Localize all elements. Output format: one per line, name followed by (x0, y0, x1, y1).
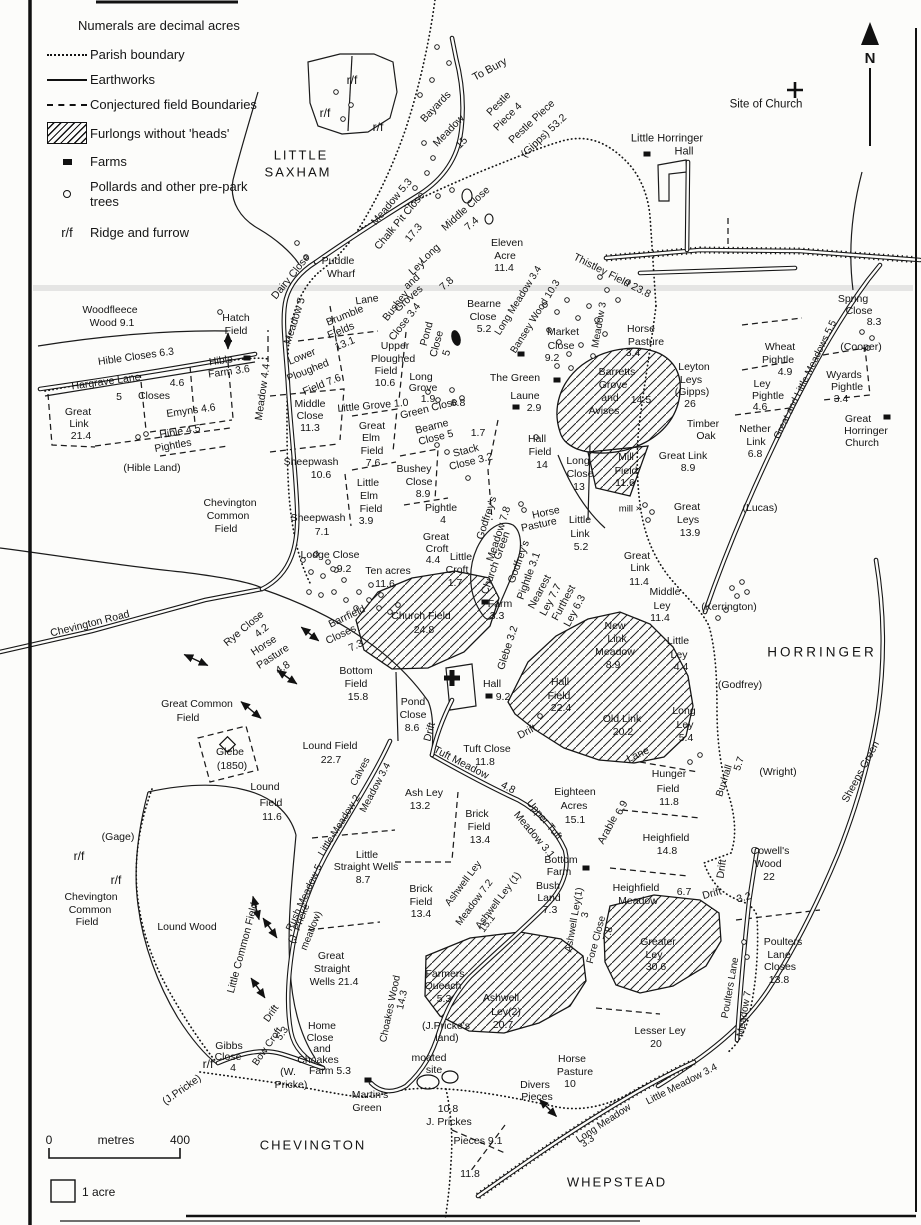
tree-icon (321, 574, 326, 579)
tree-icon (418, 93, 423, 98)
tree-icon (576, 316, 581, 321)
compass-label: N (865, 50, 876, 67)
scale-unit: metres (98, 1133, 135, 1147)
tree-icon (643, 503, 648, 508)
scale-end: 400 (170, 1133, 190, 1147)
farm-icon (244, 356, 251, 361)
ridge-furrow-arrow-icon (277, 670, 297, 684)
tree-icon (646, 518, 651, 523)
tree-icon (598, 275, 603, 280)
legend-label: Conjectured field Boundaries (90, 97, 257, 112)
tree-icon (543, 303, 548, 308)
tree-icon (557, 340, 562, 345)
tree-icon (745, 590, 750, 595)
tree-icon (866, 346, 871, 351)
tree-icon (688, 760, 693, 765)
tree-icon (369, 583, 374, 588)
tree-icon (698, 753, 703, 758)
tree-icon (870, 336, 875, 341)
farm-icon (365, 1078, 372, 1083)
legend-title: Numerals are decimal acres (78, 18, 312, 33)
tree-icon (314, 552, 319, 557)
tree-icon (388, 610, 393, 615)
scale-start: 0 (46, 1133, 53, 1147)
tree-icon (730, 586, 735, 591)
legend-label: Parish boundary (90, 47, 185, 62)
farm-icon (554, 378, 561, 383)
tree-icon (591, 354, 596, 359)
tree-icon (735, 594, 740, 599)
earthworks-icon (44, 79, 90, 81)
tree-icon (569, 366, 574, 371)
tree-icon (565, 298, 570, 303)
legend-item-parish-boundary: Parish boundary (44, 47, 312, 62)
tree-icon (595, 318, 600, 323)
conjectured-boundary-icon (44, 104, 90, 106)
tree-icon (555, 364, 560, 369)
tree-icon (450, 388, 455, 393)
tree-icon (344, 598, 349, 603)
moat (442, 1071, 458, 1083)
tree-icon (447, 61, 452, 66)
ridge-furrow-arrow-icon (263, 918, 277, 938)
legend-label: Furlongs without 'heads' (90, 126, 229, 141)
tree-icon (342, 578, 347, 583)
tree-icon (309, 570, 314, 575)
tree-icon (555, 310, 560, 315)
tree-icon (396, 603, 401, 608)
tree-icon (307, 590, 312, 595)
tree-icon (742, 940, 747, 945)
ridge-furrow-arrow-icon (251, 978, 265, 998)
tree-icon (431, 156, 436, 161)
tree-icon (349, 103, 354, 108)
tree-icon (144, 432, 149, 437)
moat (417, 1075, 439, 1089)
tree-icon (354, 606, 359, 611)
legend-item-pollards: Pollards and other pre-park trees (44, 179, 312, 209)
map-page: N 0 metres 400 1 acre r/fr/fr/fLITTLESAX… (0, 0, 921, 1225)
tree-icon (334, 90, 339, 95)
tree-clump-icon (462, 189, 472, 203)
hatched-furlongs (356, 348, 721, 1033)
tree-icon (740, 580, 745, 585)
legend: Numerals are decimal acres Parish bounda… (44, 18, 312, 250)
ridge-furrow-arrow-icon (253, 896, 259, 919)
tree-icon (331, 567, 336, 572)
tree-icon (567, 352, 572, 357)
tree-icon (422, 141, 427, 146)
tree-icon (426, 390, 431, 395)
tree-icon (603, 332, 608, 337)
tree-icon (522, 508, 527, 513)
legend-item-farms: Farms (44, 154, 312, 169)
tree-icon (466, 476, 471, 481)
tree-icon (136, 435, 141, 440)
one-acre-swatch (51, 1180, 75, 1202)
legend-item-conjectured-boundaries: Conjectured field Boundaries (44, 97, 312, 112)
farm-icon (486, 694, 493, 699)
tree-icon (413, 186, 418, 191)
ridge-furrow-arrow-icon (184, 655, 208, 666)
scan-artifacts (33, 285, 913, 291)
compass: N (861, 22, 879, 146)
tree-icon (436, 398, 441, 403)
tree-icon (367, 598, 372, 603)
tree-icon (44, 190, 90, 198)
parish-boundary-icon (44, 54, 90, 56)
tree-icon (218, 310, 223, 315)
tree-clump-icon (485, 214, 493, 224)
tree-icon (332, 590, 337, 595)
tree-icon (425, 171, 430, 176)
furlong-hatch-icon (44, 122, 90, 144)
tree-icon (538, 714, 543, 719)
tree-icon (341, 117, 346, 122)
tree-icon (605, 288, 610, 293)
tree-icon (430, 78, 435, 83)
tree-icon (650, 510, 655, 515)
ridge-furrow-icon: r/f (44, 225, 90, 240)
tree-icon (445, 450, 450, 455)
legend-label: Earthworks (90, 72, 155, 87)
tree-icon (326, 560, 331, 565)
tree-icon (377, 606, 382, 611)
tree-icon (626, 280, 631, 285)
farm-icon (583, 866, 590, 871)
farm-icon (644, 152, 651, 157)
tree-icon (379, 593, 384, 598)
north-arrow-icon (861, 22, 879, 45)
scale-bar: 0 metres 400 1 acre (46, 1133, 191, 1202)
farm-icon (513, 405, 520, 410)
ridge-furrow-arrow-icon (540, 1100, 557, 1117)
pond (450, 329, 463, 347)
tree-icon (319, 593, 324, 598)
tree-icon (450, 188, 455, 193)
tree-icon (579, 343, 584, 348)
legend-item-earthworks: Earthworks (44, 72, 312, 87)
tree-icon (616, 298, 621, 303)
ridge-furrow-arrow-icon (241, 702, 261, 719)
tree-icon (435, 443, 440, 448)
farm-icon (482, 600, 489, 605)
tree-icon (357, 590, 362, 595)
tree-icon (436, 194, 441, 199)
one-acre-label: 1 acre (82, 1185, 116, 1199)
tree-icon (435, 45, 440, 50)
tree-icon (460, 396, 465, 401)
tree-icon (519, 502, 524, 507)
glebe-marker (220, 737, 236, 753)
tree-icon (745, 955, 750, 960)
legend-label: Pollards and other pre-park trees (90, 179, 260, 209)
farm-icon (44, 159, 90, 165)
tree-icon (547, 328, 552, 333)
tree-icon (587, 304, 592, 309)
legend-label: Farms (90, 154, 127, 169)
farm-icon (884, 415, 891, 420)
tree-icon (301, 558, 306, 563)
field-boundaries-dashed (48, 218, 870, 1172)
tree-icon (534, 435, 539, 440)
legend-label: Ridge and furrow (90, 225, 189, 240)
tree-icon (724, 608, 729, 613)
tree-icon (860, 330, 865, 335)
tree-icon (716, 616, 721, 621)
farm-icon (518, 352, 525, 357)
ridge-furrow-arrow-icon (301, 627, 318, 641)
site-of-church-cross-icon (787, 82, 803, 98)
legend-item-furlongs: Furlongs without 'heads' (44, 122, 312, 144)
legend-item-ridge-furrow: r/f Ridge and furrow (44, 225, 312, 240)
tree-icon (304, 255, 309, 260)
